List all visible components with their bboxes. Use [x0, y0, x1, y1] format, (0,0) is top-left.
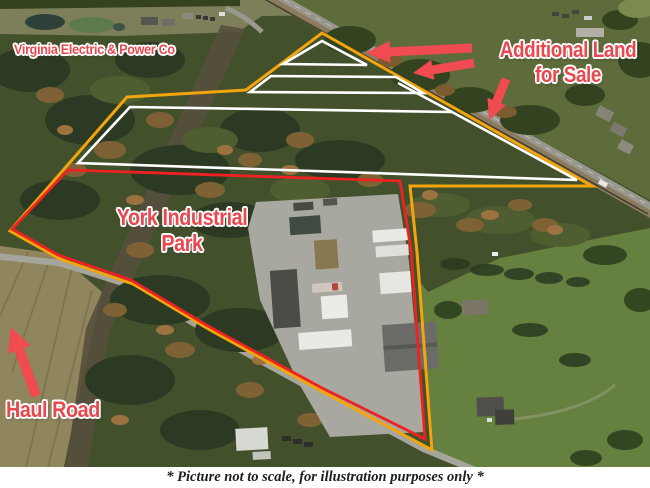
disclaimer-caption: * Picture not to scale, for illustration…	[0, 467, 650, 488]
label-haul-road: Haul Road	[6, 397, 100, 423]
label-additional-land-line1: Additional Land	[482, 37, 650, 62]
label-additional-land: Additional Land for Sale	[482, 37, 650, 87]
label-industrial-park: York Industrial Park	[105, 204, 260, 256]
label-industrial-park-line2: Park	[105, 230, 260, 256]
label-power-company: Virginia Electric & Power Co	[14, 42, 175, 57]
property-flyer: Virginia Electric & Power Co Additional …	[0, 0, 650, 488]
label-additional-land-line2: for Sale	[482, 62, 650, 87]
label-industrial-park-line1: York Industrial	[105, 204, 260, 230]
